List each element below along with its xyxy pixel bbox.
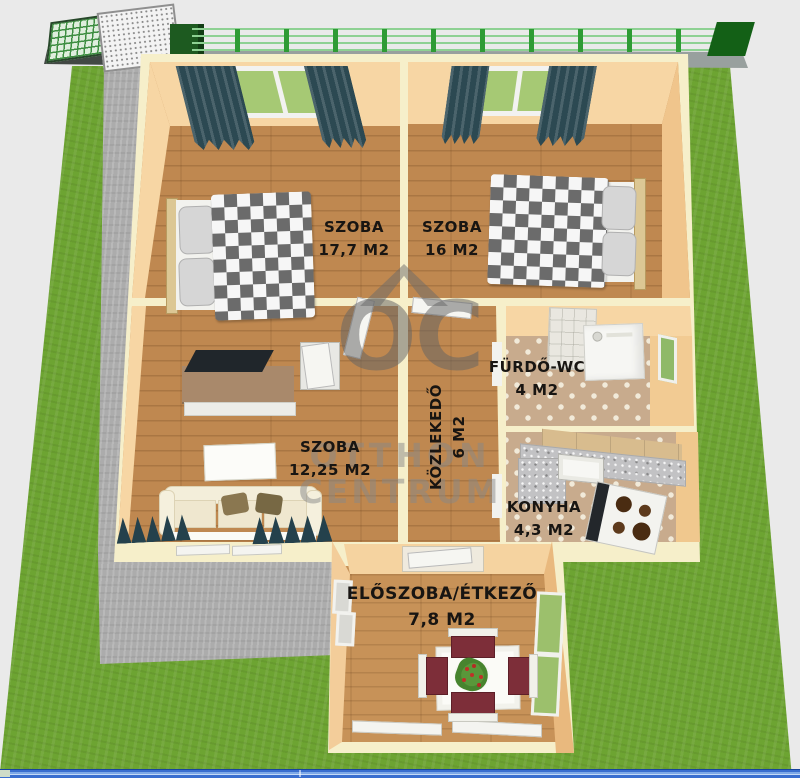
room-label-kitchen: KONYHA 4,3 M2 [483,496,605,541]
burner [612,521,626,535]
taskbar-left-notch [0,770,10,777]
room-area: 6 M2 [448,377,471,497]
room-label-hallway: KÖZLEKEDŐ 6 M2 [425,377,471,497]
room-area: 4 M2 [477,379,597,402]
window-sill-south [232,544,282,556]
fence-post [431,29,436,52]
burner [638,504,652,518]
fence-post [333,29,338,52]
watermark-logo: OC [336,288,470,388]
room-area: 12,25 M2 [270,459,390,482]
chair-backrest [529,654,538,698]
floorplan-render: OC OTTHON CENTRUM SZOBA 17,7 M2 SZOBA 16… [0,0,800,778]
fence-post [480,29,485,52]
window-sill-south [176,544,230,556]
fence-post [529,29,534,52]
sideboard-front [184,402,296,416]
burner [614,495,633,514]
room-name: KÖZLEKEDŐ [425,377,448,497]
room-label-entry: ELŐSZOBA/ÉTKEZŐ 7,8 M2 [340,582,544,633]
chair-seat [508,657,530,695]
room-name: FÜRDŐ-WC [477,356,597,379]
corner-pillar [707,22,755,56]
plant-flowers [470,673,474,677]
room-label-bedroom-2: SZOBA 16 M2 [392,216,512,261]
room-area: 16 M2 [392,239,512,262]
window-bathroom [658,334,677,384]
door-living [301,342,335,389]
chair-seat [426,657,448,695]
pillow [601,231,637,276]
room-name: SZOBA [392,216,512,239]
dining-chair-bottom [448,692,496,720]
fence-post [578,29,583,52]
table-plant-centerpiece [452,656,492,694]
room-name: SZOBA [270,436,390,459]
dining-chair-left [418,654,446,696]
fence-post [382,29,387,52]
coffee-table [203,443,276,481]
room-area: 7,8 M2 [340,608,544,634]
kitchen-sink [558,454,604,485]
fence-post [627,29,632,52]
taskbar-edge[interactable] [0,769,800,778]
chair-backrest [448,713,498,722]
burner [631,521,652,542]
sofa-seat [172,500,216,528]
dining-chair-right [508,654,536,696]
chair-seat [451,636,495,658]
room-name: ELŐSZOBA/ÉTKEZŐ [340,582,544,608]
pillow [601,185,637,230]
room-label-living: SZOBA 12,25 M2 [270,436,390,481]
washer-panel [606,332,632,337]
fence-post [284,29,289,52]
tv-flatscreen [184,350,274,372]
washer-dial [592,331,602,341]
rail-fence [192,28,742,52]
fence-post [676,29,681,52]
room-area: 4,3 M2 [483,519,605,542]
sofa-pillow [255,492,284,515]
pillow [178,257,216,306]
taskbar-divider [299,770,301,777]
room-label-bathroom: FÜRDŐ-WC 4 M2 [477,356,597,401]
pillow [178,205,216,254]
room-name: KONYHA [483,496,605,519]
chair-seat [451,692,495,714]
fence-post [235,29,240,52]
